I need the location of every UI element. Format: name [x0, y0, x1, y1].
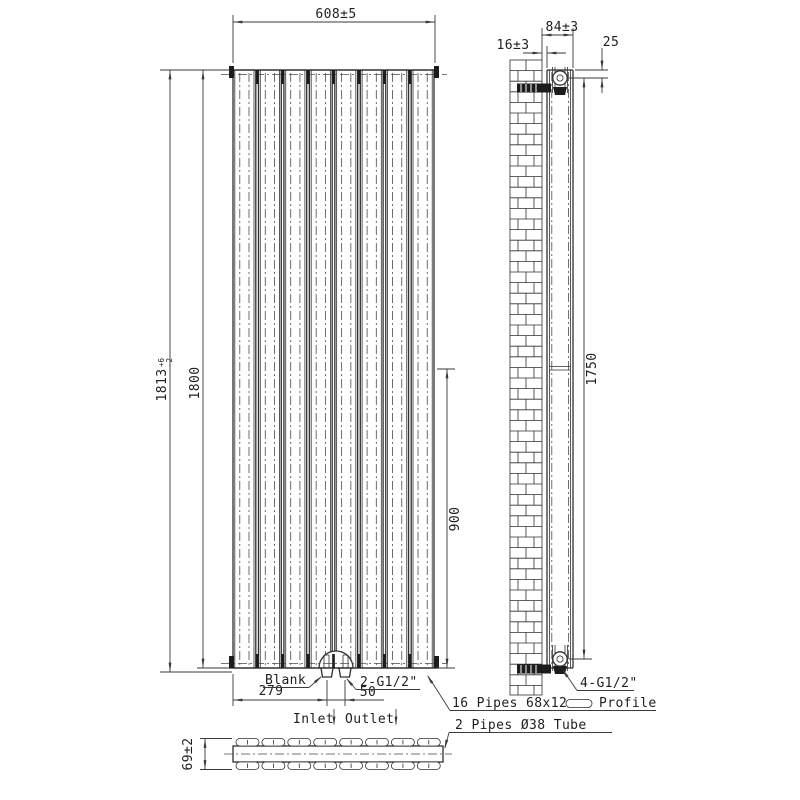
gap-bar: [409, 654, 412, 668]
radiator-panel: [335, 70, 358, 668]
tube-note: 2 Pipes Ø38 Tube: [455, 718, 587, 733]
dim-arrow: [202, 70, 205, 79]
gap-bar: [281, 70, 284, 84]
dim-arrow: [233, 21, 242, 24]
radiator-panels: [233, 70, 434, 668]
dim-arrow: [601, 61, 604, 70]
gap-bar: [383, 70, 386, 84]
dim-arrow: [395, 717, 398, 726]
radiator-panel: [386, 70, 409, 668]
side-view: [510, 60, 573, 695]
dim-arrow: [169, 663, 172, 672]
gap-bar: [332, 70, 335, 84]
dim-arrow: [533, 52, 542, 55]
width-dim: 608±5: [315, 7, 356, 22]
radiator-panel: [258, 70, 281, 668]
gap-bar: [358, 654, 361, 668]
gap-bar: [358, 70, 361, 84]
dim-arrow: [583, 650, 586, 659]
gap-bar: [332, 654, 335, 668]
dim-arrow: [233, 699, 242, 702]
section-view: [224, 739, 452, 770]
svg-text:1813: 1813: [155, 369, 170, 402]
radiator-panel: [284, 70, 307, 668]
end-cap: [229, 66, 234, 78]
gap-bar: [383, 654, 386, 668]
gap-bar: [256, 654, 259, 668]
gap-bar: [307, 654, 310, 668]
wall-gap-dim: 16±3: [497, 38, 530, 53]
radiator-panel: [411, 70, 434, 668]
end-cap: [434, 66, 439, 78]
dim-arrow: [202, 659, 205, 668]
dim-arrow: [345, 699, 354, 702]
labels: Blank 2-G1/2" Inlet Outlet 4-G1/2" 16 Pi…: [263, 670, 657, 748]
front-view: [221, 66, 447, 677]
dim-arrow: [169, 70, 172, 79]
dim-arrow: [427, 675, 433, 684]
height-dim: 1800: [188, 367, 203, 400]
gap-bar: [307, 70, 310, 84]
dim-arrow: [318, 699, 327, 702]
dim-arrow: [204, 760, 207, 769]
gap-bar: [409, 70, 412, 84]
end-cap: [229, 656, 234, 668]
pipes-note: 16 Pipes 68x12: [452, 696, 567, 711]
bracket-ring: [553, 652, 567, 666]
radiator-panel: [360, 70, 383, 668]
radiator-technical-drawing: 608±5 1813 +6 -2 1800 900 279 50 16±3: [0, 0, 800, 800]
section-height-dim: 69±2: [181, 738, 196, 771]
depth-dim: 84±3: [546, 20, 579, 35]
dim-arrow: [346, 678, 353, 686]
dim-arrow: [583, 78, 586, 87]
dim-arrow: [547, 52, 556, 55]
radiator-panel: [233, 70, 256, 668]
dim-arrow: [446, 369, 449, 378]
radiator-technical-drawing-page: 608±5 1813 +6 -2 1800 900 279 50 16±3: [0, 0, 800, 800]
wall-bolt: [517, 665, 551, 674]
svg-text:-2: -2: [165, 358, 174, 367]
profile-glyph: [566, 700, 592, 708]
gap-bar: [256, 70, 259, 84]
inlet-fitting: [321, 668, 333, 677]
dim-arrow: [314, 676, 322, 683]
outlet-label: Outlet: [345, 712, 394, 727]
overall-height-dim: 1813 +6 -2: [155, 357, 174, 401]
half-height-dim: 900: [448, 507, 463, 532]
bracket-offset-dim: 25: [603, 35, 619, 50]
dim-arrow: [204, 739, 207, 748]
blank-label: Blank: [265, 673, 306, 688]
inlet-label: Inlet: [293, 712, 334, 727]
dim-arrow: [601, 78, 604, 87]
bracket-thread-label: 4-G1/2": [580, 676, 638, 691]
dim-arrow: [426, 21, 435, 24]
valve-thread-label: 2-G1/2": [360, 675, 418, 690]
gap-bar: [281, 654, 284, 668]
end-cap: [434, 656, 439, 668]
bracket-spacing-dim: 1750: [585, 353, 600, 386]
radiator-panel: [309, 70, 332, 668]
profile-label: Profile: [599, 696, 657, 711]
outlet-fitting: [339, 668, 351, 677]
dim-arrow: [445, 740, 449, 749]
bracket-ring: [553, 71, 567, 85]
wall-bolt: [517, 84, 551, 93]
